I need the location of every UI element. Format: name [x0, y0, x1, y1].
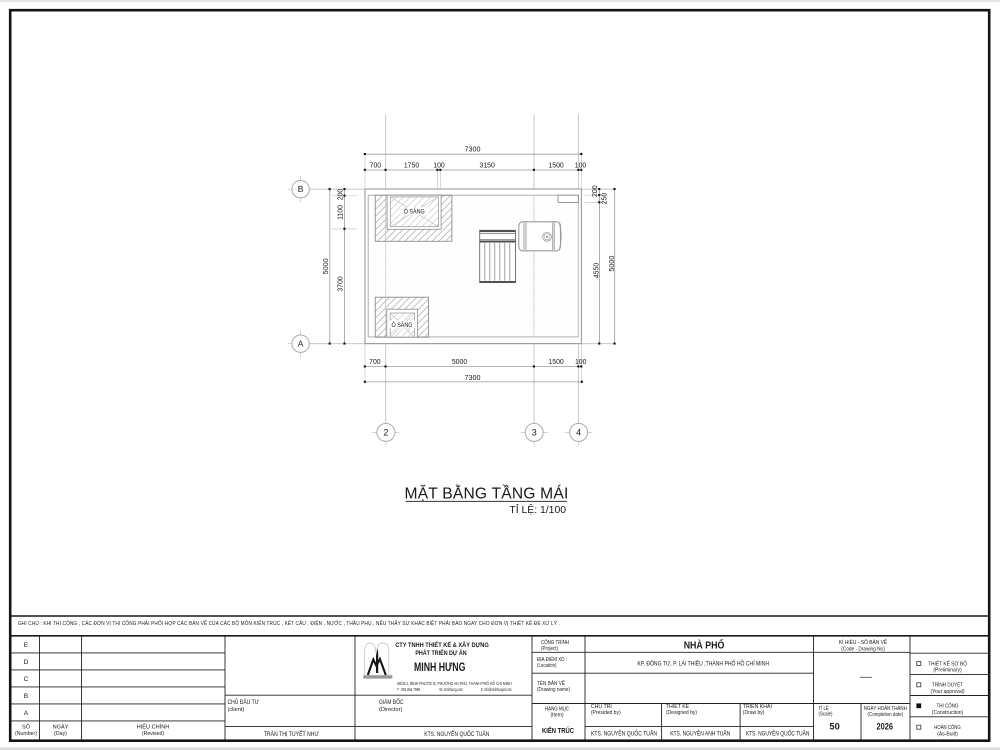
svg-text:1500: 1500 [548, 359, 563, 366]
svg-text:200: 200 [592, 185, 599, 197]
svg-text:1500: 1500 [548, 162, 563, 169]
svg-text:5000: 5000 [321, 258, 330, 274]
svg-text:TỈ LỆ: 1/100: TỈ LỆ: 1/100 [509, 503, 566, 516]
svg-text:100: 100 [433, 162, 445, 169]
svg-text:Ô SÁNG: Ô SÁNG [404, 207, 425, 216]
svg-text:(Number): (Number) [15, 731, 37, 737]
svg-text:CHỦ TRÌ: CHỦ TRÌ [591, 703, 613, 710]
svg-text:E: E [24, 642, 29, 649]
svg-text:(client): (client) [228, 707, 245, 713]
svg-text:2: 2 [383, 428, 388, 438]
svg-text:(Designed by): (Designed by) [666, 710, 697, 716]
svg-text:TRÌNH DUYỆT: TRÌNH DUYỆT [932, 681, 964, 689]
svg-text:PHÁT TRIỂN DỰ ÁN: PHÁT TRIỂN DỰ ÁN [415, 648, 467, 657]
svg-text:THIẾT KẾ: THIẾT KẾ [666, 703, 690, 710]
svg-text:KTS. NGUYỄN ANH TUẤN: KTS. NGUYỄN ANH TUẤN [670, 731, 730, 738]
svg-text:100: 100 [575, 359, 587, 366]
svg-text:B: B [24, 693, 29, 700]
svg-text:(Day): (Day) [54, 731, 67, 737]
svg-text:(Presided by): (Presided by) [591, 710, 621, 716]
svg-text:KP. ĐÔNG TỨ, P. LÁI THIÊU ,THÀ: KP. ĐÔNG TỨ, P. LÁI THIÊU ,THÀNH PHỐ HỒ … [637, 660, 769, 668]
svg-text:4550: 4550 [593, 263, 600, 278]
svg-text:(Director): (Director) [379, 707, 402, 713]
svg-text:T : 081.864.7999: T : 081.864.7999 [397, 687, 420, 692]
svg-text:1750: 1750 [404, 162, 419, 169]
svg-text:7300: 7300 [465, 145, 481, 154]
svg-text:(Preliminary): (Preliminary) [933, 668, 962, 674]
svg-text:200: 200 [338, 189, 345, 201]
svg-text:(Scale): (Scale) [819, 712, 833, 718]
svg-text:(Item): (Item) [550, 712, 563, 718]
svg-text:(Location): (Location) [537, 663, 557, 669]
svg-text:MẶT BẰNG TẦNG MÁI: MẶT BẰNG TẦNG MÁI [405, 484, 569, 503]
svg-text:A: A [298, 339, 304, 349]
svg-text:TÊN BẢN VẼ: TÊN BẢN VẼ [537, 679, 565, 687]
svg-text:KÍ HIỆU - SỐ BẢN VẼ: KÍ HIỆU - SỐ BẢN VẼ [839, 638, 888, 646]
svg-text:50: 50 [829, 722, 839, 732]
svg-text:250: 250 [602, 193, 609, 205]
svg-text:CHỦ ĐẦU TƯ: CHỦ ĐẦU TƯ [228, 699, 260, 706]
svg-text:GIÁM ĐỐC: GIÁM ĐỐC [379, 699, 404, 706]
svg-text:NGÀY: NGÀY [53, 724, 69, 731]
svg-text:E: info@minhhungxd.com: E: info@minhhungxd.com [481, 687, 512, 692]
svg-text:(Draw by): (Draw by) [743, 710, 765, 716]
svg-text:3700: 3700 [338, 276, 345, 291]
svg-text:SỐ: SỐ [22, 724, 31, 731]
svg-text:68/3C1, BÌNH PHƯỚC B, PHƯỜNG A: 68/3C1, BÌNH PHƯỚC B, PHƯỜNG AN PHÚ, THÀ… [397, 680, 511, 686]
svg-text:KTS. NGUYỄN QUỐC TUẤN: KTS. NGUYỄN QUỐC TUẤN [591, 731, 657, 738]
svg-text:KIẾN TRÚC: KIẾN TRÚC [542, 725, 574, 735]
svg-text:(Construction): (Construction) [932, 710, 964, 716]
svg-text:(Drawing name): (Drawing name) [537, 687, 570, 693]
svg-text:(As-Built): (As-Built) [937, 731, 958, 737]
svg-text:(Revised): (Revised) [142, 731, 164, 737]
svg-text:3: 3 [532, 428, 537, 438]
svg-text:(Project): (Project) [541, 646, 558, 652]
svg-text:A: A [24, 710, 29, 717]
svg-text:700: 700 [370, 162, 382, 169]
svg-text:Ô SÁNG: Ô SÁNG [392, 320, 413, 329]
svg-text:5000: 5000 [607, 256, 616, 272]
svg-text:GHI CHÚ : KHI THI CÔNG , CÁC Đ: GHI CHÚ : KHI THI CÔNG , CÁC ĐƠN VỊ THI … [18, 619, 560, 627]
svg-text:CÔNG TRÌNH: CÔNG TRÌNH [541, 639, 569, 646]
svg-text:(Your approval): (Your approval) [930, 689, 964, 695]
svg-text:C: C [24, 676, 29, 683]
svg-text:5000: 5000 [452, 359, 467, 366]
svg-text:(Code - Drawing No): (Code - Drawing No) [841, 646, 885, 652]
svg-text:B: B [298, 184, 304, 194]
svg-text:NHÀ PHỐ: NHÀ PHỐ [684, 638, 725, 652]
svg-text:ĐỊA ĐIỂM XD :: ĐỊA ĐIỂM XD : [537, 656, 567, 663]
svg-text:TRIỂN KHAI: TRIỂN KHAI [743, 703, 772, 710]
svg-text:2026: 2026 [877, 722, 894, 732]
svg-text:100: 100 [575, 162, 587, 169]
svg-text:THI CÔNG: THI CÔNG [937, 703, 959, 710]
svg-text:HOÀN CÔNG: HOÀN CÔNG [934, 724, 961, 731]
svg-text:4: 4 [576, 428, 581, 438]
svg-text:700: 700 [369, 359, 381, 366]
svg-text:1100: 1100 [338, 205, 345, 220]
svg-text:KTS. NGUYỄN QUỐC TUẤN: KTS. NGUYỄN QUỐC TUẤN [746, 731, 810, 738]
svg-text:7300: 7300 [465, 373, 481, 382]
svg-text:3150: 3150 [480, 162, 495, 169]
svg-text:MINH HƯNG: MINH HƯNG [414, 661, 465, 674]
svg-text:THIẾT KẾ SƠ BỘ: THIẾT KẾ SƠ BỘ [928, 660, 967, 667]
svg-text:(Completion date): (Completion date) [868, 712, 904, 718]
svg-text:D: D [24, 659, 29, 666]
svg-text:HIỆU CHỈNH: HIỆU CHỈNH [137, 723, 170, 731]
svg-text:W: minhhung.com: W: minhhung.com [439, 687, 463, 692]
